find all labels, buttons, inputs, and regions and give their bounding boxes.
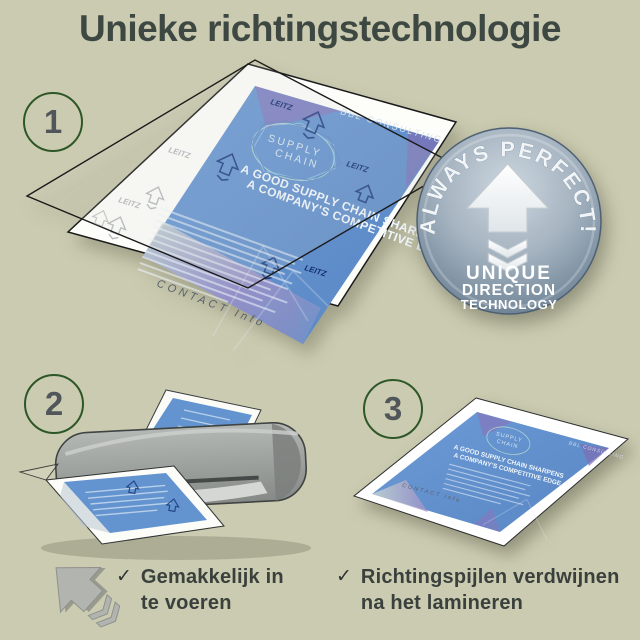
page-title: Unieke richtingstechnologie (0, 8, 640, 50)
bullet-arrows-disappear: ✓ Richtingspijlen verdwijnen na het lami… (336, 564, 636, 616)
step1-pouch-illustration: LEITZ LEITZ BBL CONSULTING (8, 56, 468, 368)
step-3-number: 3 (384, 390, 402, 428)
step-1-marker: 1 (23, 92, 83, 152)
step-3-marker: 3 (363, 379, 423, 439)
always-perfect-badge: ALWAYS PERFECT! UNIQUE DIRECTION TECHNOL… (410, 122, 608, 322)
badge-line1: UNIQUE (466, 263, 552, 284)
bullet-arrows-disappear-text: Richtingspijlen verdwijnen na het lamine… (361, 564, 623, 616)
check-icon: ✓ (336, 564, 352, 590)
pouch-flap (20, 464, 58, 480)
badge-line3: TECHNOLOGY (461, 297, 558, 312)
check-icon: ✓ (116, 564, 132, 590)
step-2-number: 2 (45, 385, 63, 423)
bullet-easy-feed: ✓ Gemakkelijk in te voeren (116, 564, 306, 616)
step-1-number: 1 (44, 103, 62, 141)
laminating-pouch (27, 60, 458, 288)
infographic-canvas: Unieke richtingstechnologie LEITZ LEITZ (0, 0, 640, 640)
bullet-easy-feed-text: Gemakkelijk in te voeren (141, 564, 293, 616)
step-2-marker: 2 (24, 374, 84, 434)
